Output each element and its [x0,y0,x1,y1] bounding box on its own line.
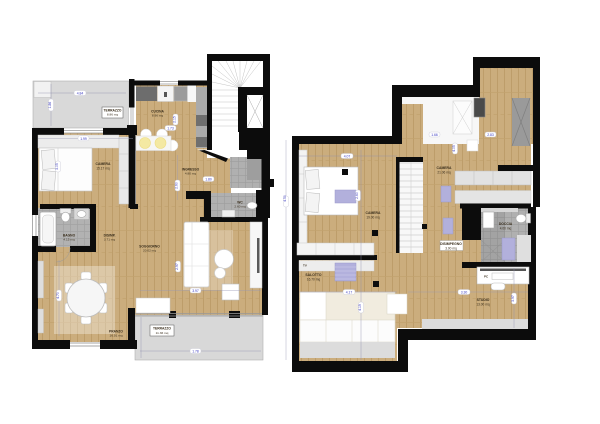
svg-text:1.66: 1.66 [431,133,438,137]
svg-text:4.50: 4.50 [283,195,287,202]
svg-text:3.97: 3.97 [511,295,515,302]
svg-text:16.01 mq: 16.01 mq [110,334,123,338]
svg-text:8.86 mq: 8.86 mq [107,113,118,117]
svg-text:1.86: 1.86 [48,102,52,109]
svg-text:4.19: 4.19 [358,304,362,311]
svg-text:CAMERA: CAMERA [437,166,452,170]
svg-text:TERRAZZO: TERRAZZO [153,327,171,331]
svg-text:20.02 mq: 20.02 mq [143,249,156,253]
svg-text:2.60: 2.60 [175,182,179,189]
svg-text:2.97: 2.97 [175,263,179,270]
svg-text:4.07: 4.07 [344,155,351,159]
svg-text:2.60: 2.60 [355,192,359,199]
svg-text:15.17 mq: 15.17 mq [96,166,110,170]
svg-text:2.15: 2.15 [173,116,177,123]
svg-text:3.30: 3.30 [461,291,468,295]
svg-text:11.36 mq: 11.36 mq [156,331,169,335]
svg-text:2.83: 2.83 [487,133,494,137]
svg-text:16.70 mq: 16.70 mq [307,277,321,281]
svg-text:3.71 mq: 3.71 mq [104,238,115,242]
svg-text:4.05: 4.05 [452,145,456,152]
svg-text:1.80: 1.80 [205,178,212,182]
svg-text:3.97: 3.97 [192,289,199,293]
svg-text:2.60 mq: 2.60 mq [234,205,245,209]
svg-text:4.15 mq: 4.15 mq [63,238,74,242]
svg-text:CAMERA: CAMERA [96,162,111,166]
svg-text:4.80 mq: 4.80 mq [185,172,196,176]
svg-text:21.06 mq: 21.06 mq [437,170,451,174]
svg-text:3.05: 3.05 [55,163,59,170]
svg-text:SALOTTO: SALOTTO [305,273,321,277]
svg-text:STUDIO: STUDIO [477,298,490,302]
svg-text:1.78: 1.78 [192,350,199,354]
svg-text:19.00 mq: 19.00 mq [366,215,380,219]
svg-text:TV: TV [303,264,307,268]
svg-text:4.17: 4.17 [346,291,353,295]
svg-text:3.00 mq: 3.00 mq [445,246,457,250]
svg-text:DISIMPEGNO: DISIMPEGNO [440,242,462,246]
svg-text:4.84: 4.84 [77,92,84,96]
svg-text:4.70: 4.70 [56,292,60,299]
svg-text:1.99: 1.99 [80,137,87,141]
svg-text:8.96 mq: 8.96 mq [152,114,163,118]
svg-text:1.73: 1.73 [167,127,174,131]
svg-text:CAMERA: CAMERA [366,211,381,215]
svg-text:13.00 mq: 13.00 mq [476,302,490,306]
